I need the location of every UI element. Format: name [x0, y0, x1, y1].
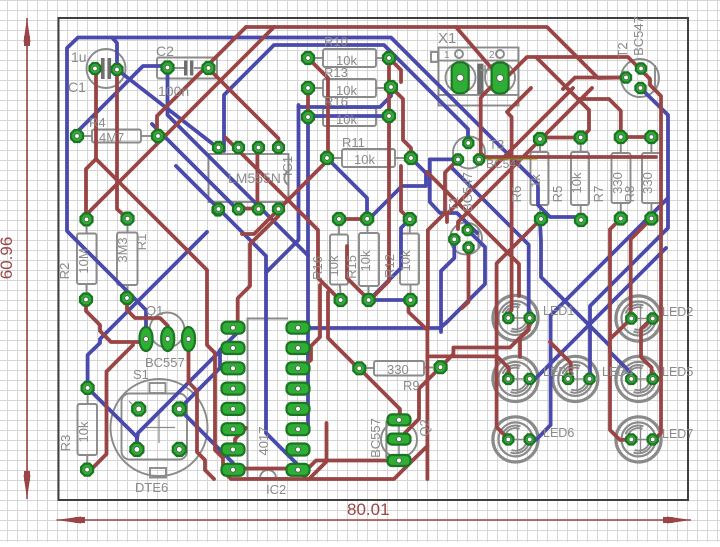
svg-text:LM555N: LM555N [228, 170, 281, 186]
svg-text:R10: R10 [324, 34, 348, 49]
svg-text:LED2: LED2 [662, 305, 693, 319]
svg-text:R4: R4 [89, 115, 106, 130]
svg-text:IC2: IC2 [266, 482, 286, 497]
svg-text:Q1: Q1 [146, 303, 163, 318]
svg-text:LED7: LED7 [662, 427, 693, 441]
svg-text:R2: R2 [57, 263, 72, 280]
svg-text:LED3: LED3 [543, 365, 574, 379]
svg-text:X1: X1 [438, 30, 456, 47]
svg-text:R9: R9 [403, 378, 420, 393]
svg-text:1k: 1k [528, 174, 543, 188]
svg-text:R3: R3 [58, 435, 73, 452]
svg-text:DTE6: DTE6 [135, 480, 168, 495]
svg-text:S1: S1 [133, 367, 149, 382]
svg-text:4017: 4017 [256, 427, 271, 456]
svg-text:BC547: BC547 [460, 172, 475, 212]
svg-text:R16: R16 [310, 256, 325, 280]
svg-text:C2: C2 [156, 43, 174, 59]
svg-text:330: 330 [387, 362, 409, 377]
svg-text:R5: R5 [550, 186, 565, 203]
svg-text:R16: R16 [324, 94, 348, 109]
svg-text:LED4: LED4 [602, 365, 633, 379]
svg-text:C1: C1 [68, 79, 86, 95]
svg-text:10k: 10k [569, 172, 584, 193]
svg-text:R11: R11 [342, 135, 365, 150]
svg-text:330: 330 [640, 172, 655, 194]
svg-text:10k: 10k [336, 112, 357, 127]
svg-text:T3: T3 [489, 137, 504, 152]
svg-text:R6: R6 [509, 186, 524, 203]
svg-text:IC1: IC1 [280, 156, 295, 176]
svg-text:10k: 10k [76, 421, 91, 442]
svg-text:3M3: 3M3 [115, 237, 130, 262]
svg-text:BC547: BC547 [631, 16, 646, 56]
svg-text:10k: 10k [398, 250, 413, 271]
svg-text:T1: T1 [446, 196, 461, 211]
svg-text:Q2: Q2 [417, 419, 432, 436]
svg-text:R7: R7 [591, 186, 606, 203]
svg-text:R8: R8 [622, 186, 637, 203]
svg-text:10M: 10M [76, 248, 91, 273]
svg-text:1: 1 [444, 50, 450, 61]
svg-text:10k: 10k [358, 250, 373, 271]
svg-text:LED1: LED1 [543, 304, 574, 318]
svg-text:10k: 10k [326, 255, 341, 276]
svg-text:100n: 100n [158, 83, 189, 99]
svg-text:R13: R13 [324, 65, 348, 80]
svg-text:LED6: LED6 [543, 426, 574, 440]
svg-text:BC557: BC557 [368, 418, 383, 458]
svg-text:T2: T2 [615, 42, 630, 57]
svg-text:2: 2 [489, 50, 495, 61]
svg-text:R12: R12 [382, 254, 397, 278]
svg-text:80.01: 80.01 [347, 500, 390, 519]
svg-text:R1: R1 [134, 234, 149, 251]
svg-text:10k: 10k [354, 152, 375, 167]
svg-text:BC547: BC547 [486, 157, 523, 171]
svg-text:LED5: LED5 [662, 365, 693, 379]
svg-text:4M7: 4M7 [99, 130, 124, 145]
svg-text:1u: 1u [71, 49, 87, 65]
svg-text:BC557: BC557 [145, 355, 185, 370]
svg-text:R15: R15 [344, 255, 359, 279]
svg-text:60.96: 60.96 [0, 237, 16, 280]
